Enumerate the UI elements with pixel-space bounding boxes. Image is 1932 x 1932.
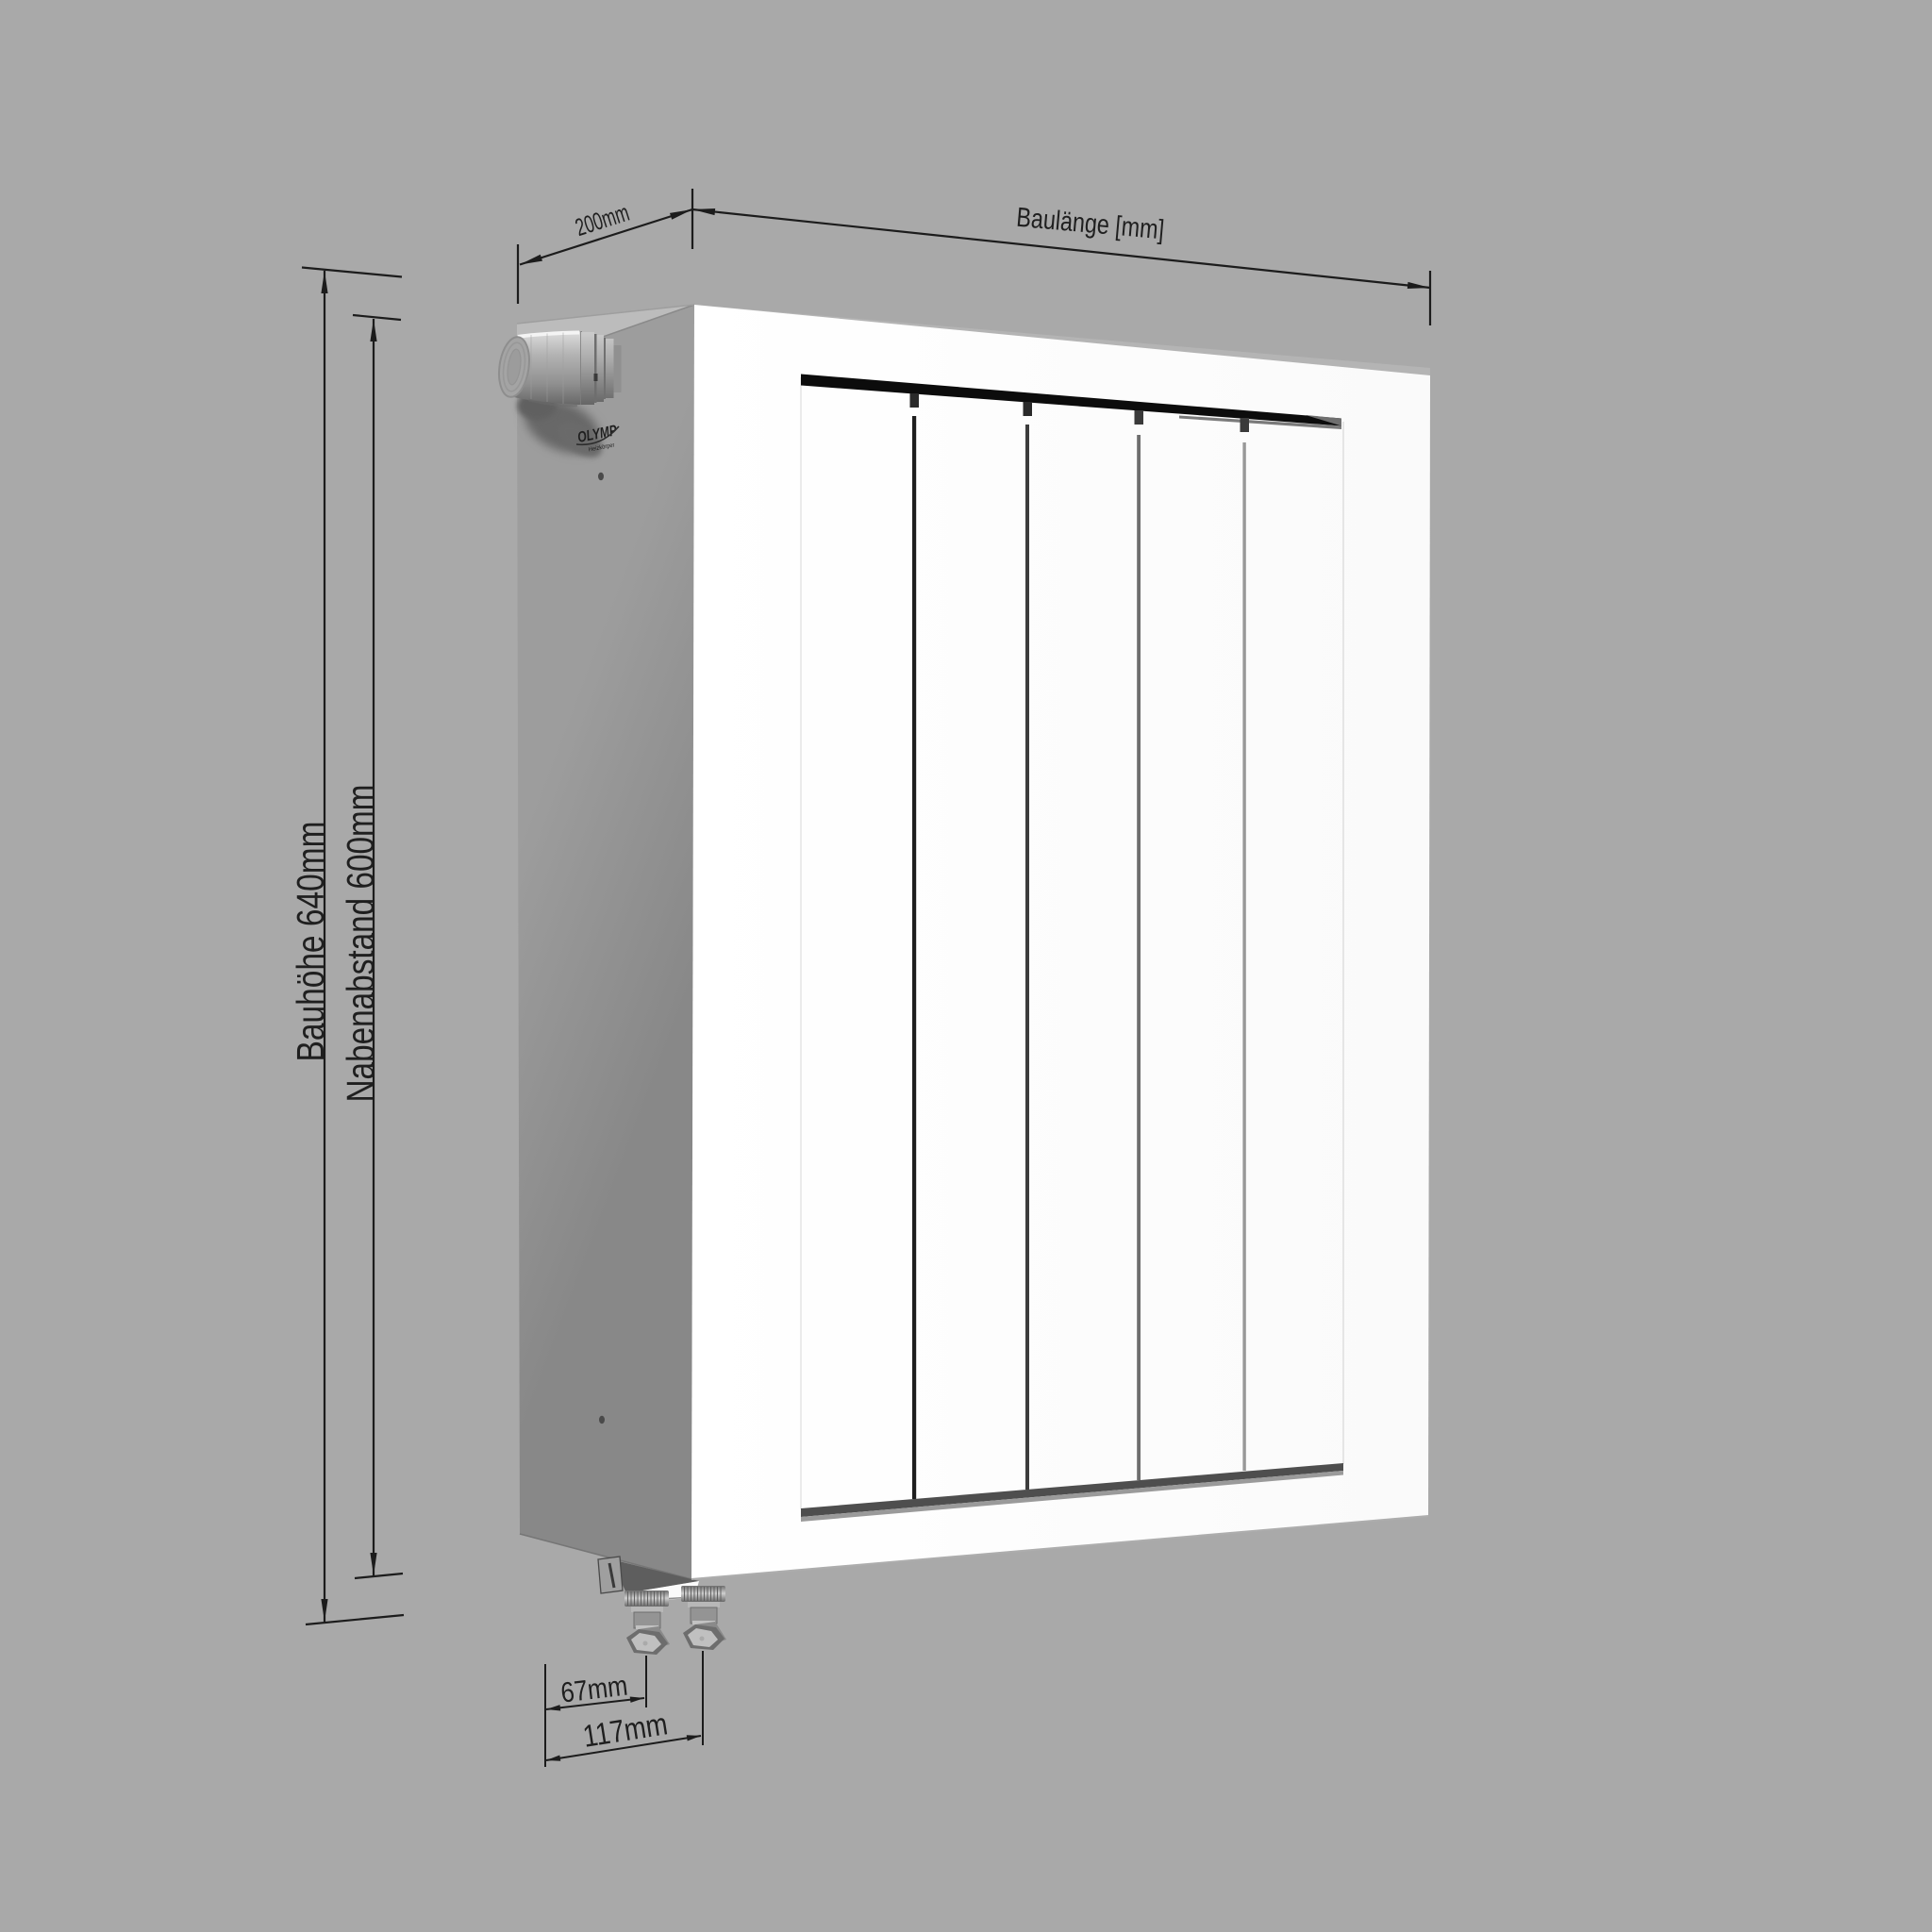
svg-text:Nabenabstand 600mm: Nabenabstand 600mm bbox=[339, 785, 382, 1103]
svg-text:Bauhöhe 640mm: Bauhöhe 640mm bbox=[289, 822, 332, 1062]
